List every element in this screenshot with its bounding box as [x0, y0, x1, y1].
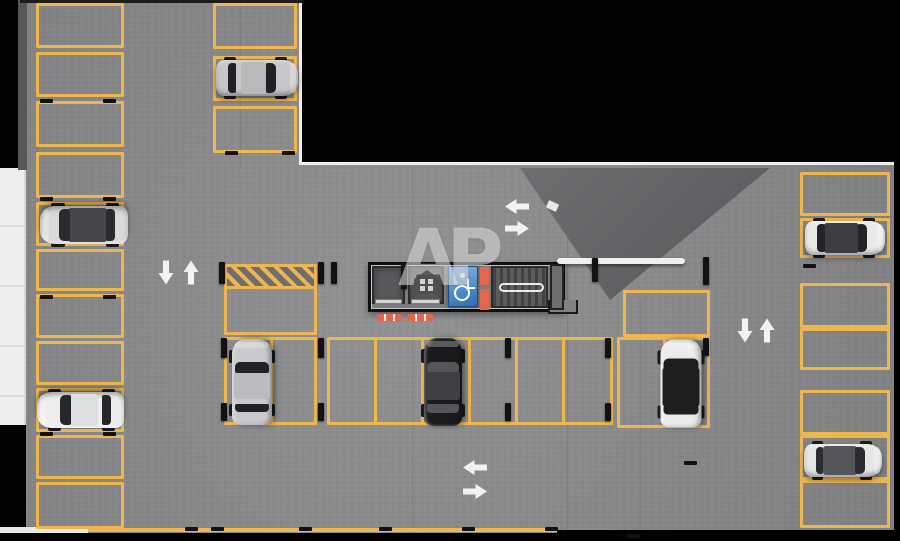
structural-post — [505, 338, 511, 358]
structural-post — [318, 338, 324, 358]
lightwell-mullion — [0, 225, 24, 227]
accessible-parking-sign — [448, 266, 478, 307]
car-rear-window — [427, 404, 459, 413]
lightwell-mullion — [0, 285, 24, 287]
parking-space-block — [623, 290, 710, 337]
wheel-stop — [103, 432, 116, 436]
wheel-stop — [40, 197, 53, 201]
wheelchair-head — [460, 273, 465, 278]
structural-post — [605, 338, 611, 358]
car-nose-highlight — [43, 209, 49, 241]
structural-post — [592, 258, 598, 282]
wheel-stop — [40, 99, 53, 103]
car-nose-highlight — [39, 395, 45, 425]
car-cabin-roof — [824, 223, 859, 253]
car-rear-window — [102, 395, 111, 425]
parking-space — [800, 390, 890, 435]
bottom-wall-step — [557, 530, 897, 541]
fire-equipment-stripe — [480, 289, 489, 310]
car-white-sedan-left — [37, 390, 124, 430]
elevator-mat — [408, 314, 433, 321]
car-cabin-roof — [70, 394, 98, 426]
car-cabin-roof — [241, 62, 267, 94]
car-nose-highlight — [235, 342, 269, 348]
structural-post — [331, 262, 337, 284]
structural-post — [318, 262, 324, 284]
parking-space — [213, 106, 297, 153]
car-cabin-roof — [823, 446, 857, 475]
parking-space — [800, 283, 890, 328]
car-silver-hatchback-top — [216, 58, 298, 98]
arrow-left-icon — [505, 198, 529, 215]
bottom-parking-edge-line — [88, 528, 557, 532]
parking-space — [36, 152, 124, 198]
car-rear-window — [228, 63, 236, 93]
space-divider-line — [468, 340, 471, 422]
parking-space — [36, 341, 124, 385]
car-cabin-roof — [426, 371, 460, 399]
parking-space — [800, 172, 890, 216]
structural-post — [219, 262, 225, 284]
parking-space — [36, 52, 124, 97]
wall-beam — [557, 258, 685, 264]
car-gray-suv-left — [40, 204, 128, 246]
car-rear-window — [106, 209, 115, 241]
elevator-mat — [377, 314, 402, 321]
wheelchair-seat — [467, 287, 475, 289]
wheel-stop — [40, 295, 53, 299]
wheel-stop — [211, 527, 224, 531]
parking-space — [36, 435, 124, 479]
car-windshield — [59, 209, 70, 241]
arrow-left-icon — [463, 459, 487, 476]
structural-post — [318, 403, 324, 421]
parking-space-block — [327, 337, 613, 425]
space-divider-line — [374, 340, 377, 422]
wheel-stop — [684, 461, 697, 465]
car-rear-window — [235, 404, 269, 413]
wheel-stop — [803, 264, 816, 268]
left-exterior-wall — [18, 0, 27, 170]
building-void-left-bottom — [0, 425, 26, 541]
space-divider-line — [562, 340, 565, 422]
structural-post — [221, 403, 227, 421]
car-windshield — [664, 358, 699, 369]
arrow-down-icon — [737, 319, 754, 343]
car-windshield — [427, 362, 459, 373]
parking-space — [800, 480, 890, 528]
car-cabin-roof — [663, 367, 700, 406]
wheel-stop — [462, 527, 475, 531]
building-void-right — [894, 0, 900, 541]
lightwell-mullion — [0, 395, 24, 397]
parking-space — [36, 3, 124, 48]
wheel-stop — [545, 527, 558, 531]
building-void-top-right — [299, 0, 894, 165]
car-silver-sedan-center — [230, 339, 274, 425]
car-nose-highlight — [877, 224, 883, 252]
arrow-down-icon — [158, 261, 175, 285]
car-rear-window — [816, 447, 824, 474]
car-white-black-roof-car — [659, 339, 704, 427]
car-white-suv-right-top — [805, 219, 885, 257]
car-windshield — [235, 362, 269, 372]
car-nose-highlight — [664, 342, 699, 348]
arrow-right-icon — [463, 483, 487, 500]
car-nose-highlight — [290, 63, 296, 93]
wheel-stop — [40, 432, 53, 436]
lightwell-mullion — [0, 345, 24, 347]
wheel-stop — [299, 527, 312, 531]
car-rear-window — [817, 224, 825, 252]
space-divider-line — [515, 340, 518, 422]
wheel-stop — [103, 197, 116, 201]
wheel-stop — [379, 527, 392, 531]
car-nose-highlight — [874, 447, 879, 474]
car-nose-highlight — [427, 341, 459, 347]
wheel-stop — [282, 151, 295, 155]
structural-post — [401, 263, 407, 289]
structural-post — [703, 257, 709, 285]
car-windshield — [855, 447, 864, 474]
wheel-stop — [103, 99, 116, 103]
hatched-zone — [224, 264, 317, 289]
parking-space-block — [224, 286, 317, 335]
parking-space — [800, 328, 890, 370]
car-windshield — [266, 63, 276, 93]
parking-space — [213, 3, 297, 49]
wheel-stop — [225, 151, 238, 155]
arrow-right-icon — [505, 220, 529, 237]
wheel-stop — [103, 295, 116, 299]
car-windshield — [858, 224, 868, 252]
car-black-sedan-center — [422, 338, 464, 426]
structural-post — [505, 403, 511, 421]
arrow-up-icon — [759, 319, 776, 343]
wheel-stop — [627, 534, 640, 538]
car-cabin-roof — [234, 372, 270, 400]
stair-handrail — [499, 283, 544, 292]
wheel-stop — [185, 527, 198, 531]
car-windshield — [60, 395, 70, 425]
structural-post — [605, 403, 611, 421]
car-rear-window — [664, 405, 699, 414]
parking-space — [36, 249, 124, 291]
arrow-up-icon — [183, 261, 200, 285]
car-cabin-roof — [68, 208, 107, 242]
parking-space — [36, 294, 124, 338]
shaft-room — [550, 264, 564, 310]
left-lightwell — [0, 168, 26, 425]
structural-post — [221, 338, 227, 358]
car-gray-car-right-bottom — [804, 442, 882, 479]
parking-space — [36, 482, 124, 529]
elevator-threshold — [375, 299, 402, 304]
parking-space — [36, 101, 124, 147]
parking-floor-plan: AP — [0, 0, 900, 541]
elevator-threshold — [411, 299, 440, 304]
fire-equipment-stripe — [480, 267, 489, 285]
